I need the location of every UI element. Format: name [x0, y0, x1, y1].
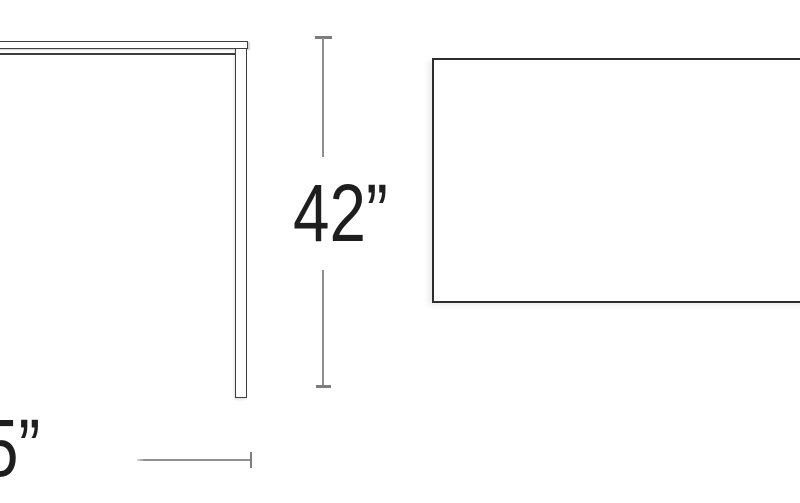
- tabletop-slab: [0, 41, 248, 49]
- width-dimension-label: 5”: [0, 408, 40, 490]
- table-leg: [235, 48, 247, 398]
- width-dimension-line: [137, 459, 250, 461]
- tabletop-apron-line: [0, 53, 236, 55]
- height-dimension-bottom-tick: [316, 385, 331, 388]
- height-dimension-upper-line: [322, 38, 324, 157]
- height-dimension-label: 42”: [293, 173, 388, 255]
- furniture-dimension-diagram: 42” 5”: [0, 0, 800, 503]
- width-dimension-right-tick: [250, 452, 253, 468]
- table-top-view-outline: [432, 58, 800, 303]
- height-dimension-lower-line: [322, 270, 324, 386]
